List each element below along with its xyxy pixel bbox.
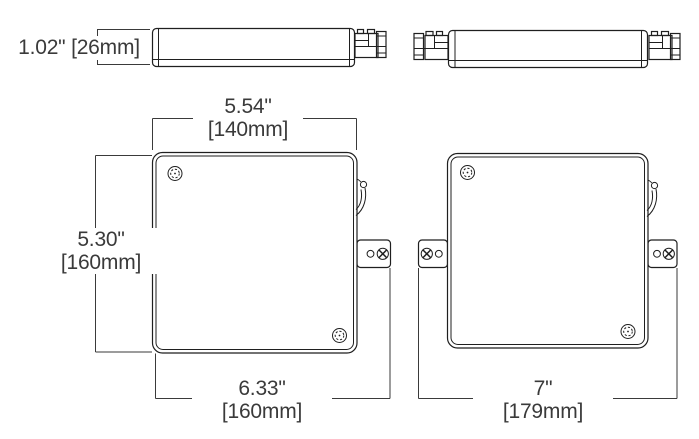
dim-body-height-label: 5.30" [160mm] bbox=[31, 228, 171, 274]
dim-thickness-label: 1.02" [26mm] bbox=[8, 36, 150, 60]
end-connector-right-icon bbox=[649, 32, 680, 60]
mounting-hole-icon bbox=[654, 250, 661, 257]
dim-body-height-inches: 5.30" bbox=[31, 228, 171, 251]
dimension-drawing: 1.02" [26mm] 5.54" [140mm] 5.30" [160mm]… bbox=[0, 0, 699, 439]
front-view-single-feed bbox=[153, 153, 391, 354]
device-body bbox=[449, 31, 648, 68]
end-connector-left-icon bbox=[414, 32, 448, 60]
side-view-single-connector bbox=[153, 29, 387, 67]
dim-overall-width-left-inches: 6.33" bbox=[192, 377, 332, 400]
dim-body-height-mm: [160mm] bbox=[31, 251, 171, 274]
phillips-screw-icon bbox=[377, 248, 388, 259]
front-view-dual-feed bbox=[419, 154, 678, 349]
device-body bbox=[153, 29, 355, 67]
dim-overall-width-right-mm: [179mm] bbox=[473, 400, 613, 423]
dim-body-width-label: 5.54" [140mm] bbox=[193, 95, 303, 141]
dim-overall-width-left-label: 6.33" [160mm] bbox=[192, 377, 332, 423]
mounting-hole-icon bbox=[367, 250, 374, 257]
dim-overall-width-right-label: 7" [179mm] bbox=[473, 377, 613, 423]
enclosure-body bbox=[153, 153, 358, 354]
phillips-screw-icon bbox=[663, 248, 674, 259]
dim-body-width-mm: [140mm] bbox=[193, 118, 303, 141]
dim-overall-width-right-inches: 7" bbox=[473, 377, 613, 400]
drawing-canvas bbox=[0, 0, 699, 439]
end-connector-icon bbox=[355, 30, 386, 58]
phillips-screw-icon bbox=[421, 248, 432, 259]
mounting-tab bbox=[648, 240, 677, 268]
dim-body-width-inches: 5.54" bbox=[193, 95, 303, 118]
side-view-dual-connector bbox=[414, 31, 680, 68]
enclosure-body bbox=[448, 154, 649, 349]
dim-overall-width-left-mm: [160mm] bbox=[192, 400, 332, 423]
mounting-tab bbox=[419, 240, 448, 268]
mounting-hole-icon bbox=[435, 250, 442, 257]
dim-thickness-text: 1.02" [26mm] bbox=[18, 36, 140, 59]
